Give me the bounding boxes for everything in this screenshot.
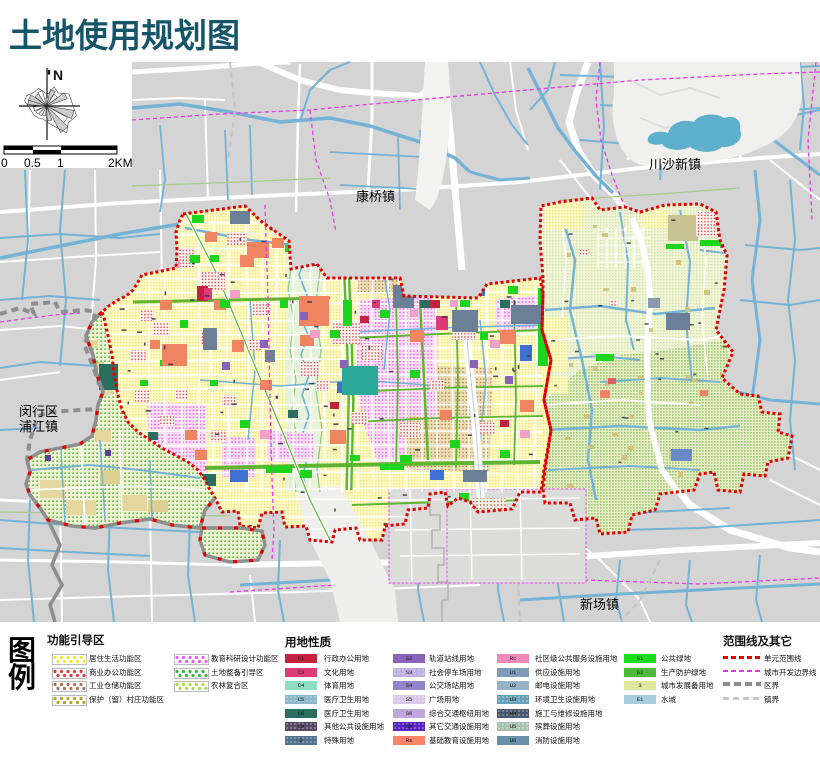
svg-text:浦江镇: 浦江镇 xyxy=(19,419,58,434)
svg-text:川沙新镇: 川沙新镇 xyxy=(649,157,701,172)
svg-text:闵行区: 闵行区 xyxy=(19,404,58,419)
svg-text:新场镇: 新场镇 xyxy=(580,597,619,612)
svg-text:N: N xyxy=(53,67,63,83)
svg-text:1: 1 xyxy=(57,156,64,170)
svg-text:0: 0 xyxy=(1,156,8,170)
svg-text:2KM: 2KM xyxy=(108,156,133,170)
svg-text:0.5: 0.5 xyxy=(24,156,41,170)
svg-text:康桥镇: 康桥镇 xyxy=(356,189,395,204)
